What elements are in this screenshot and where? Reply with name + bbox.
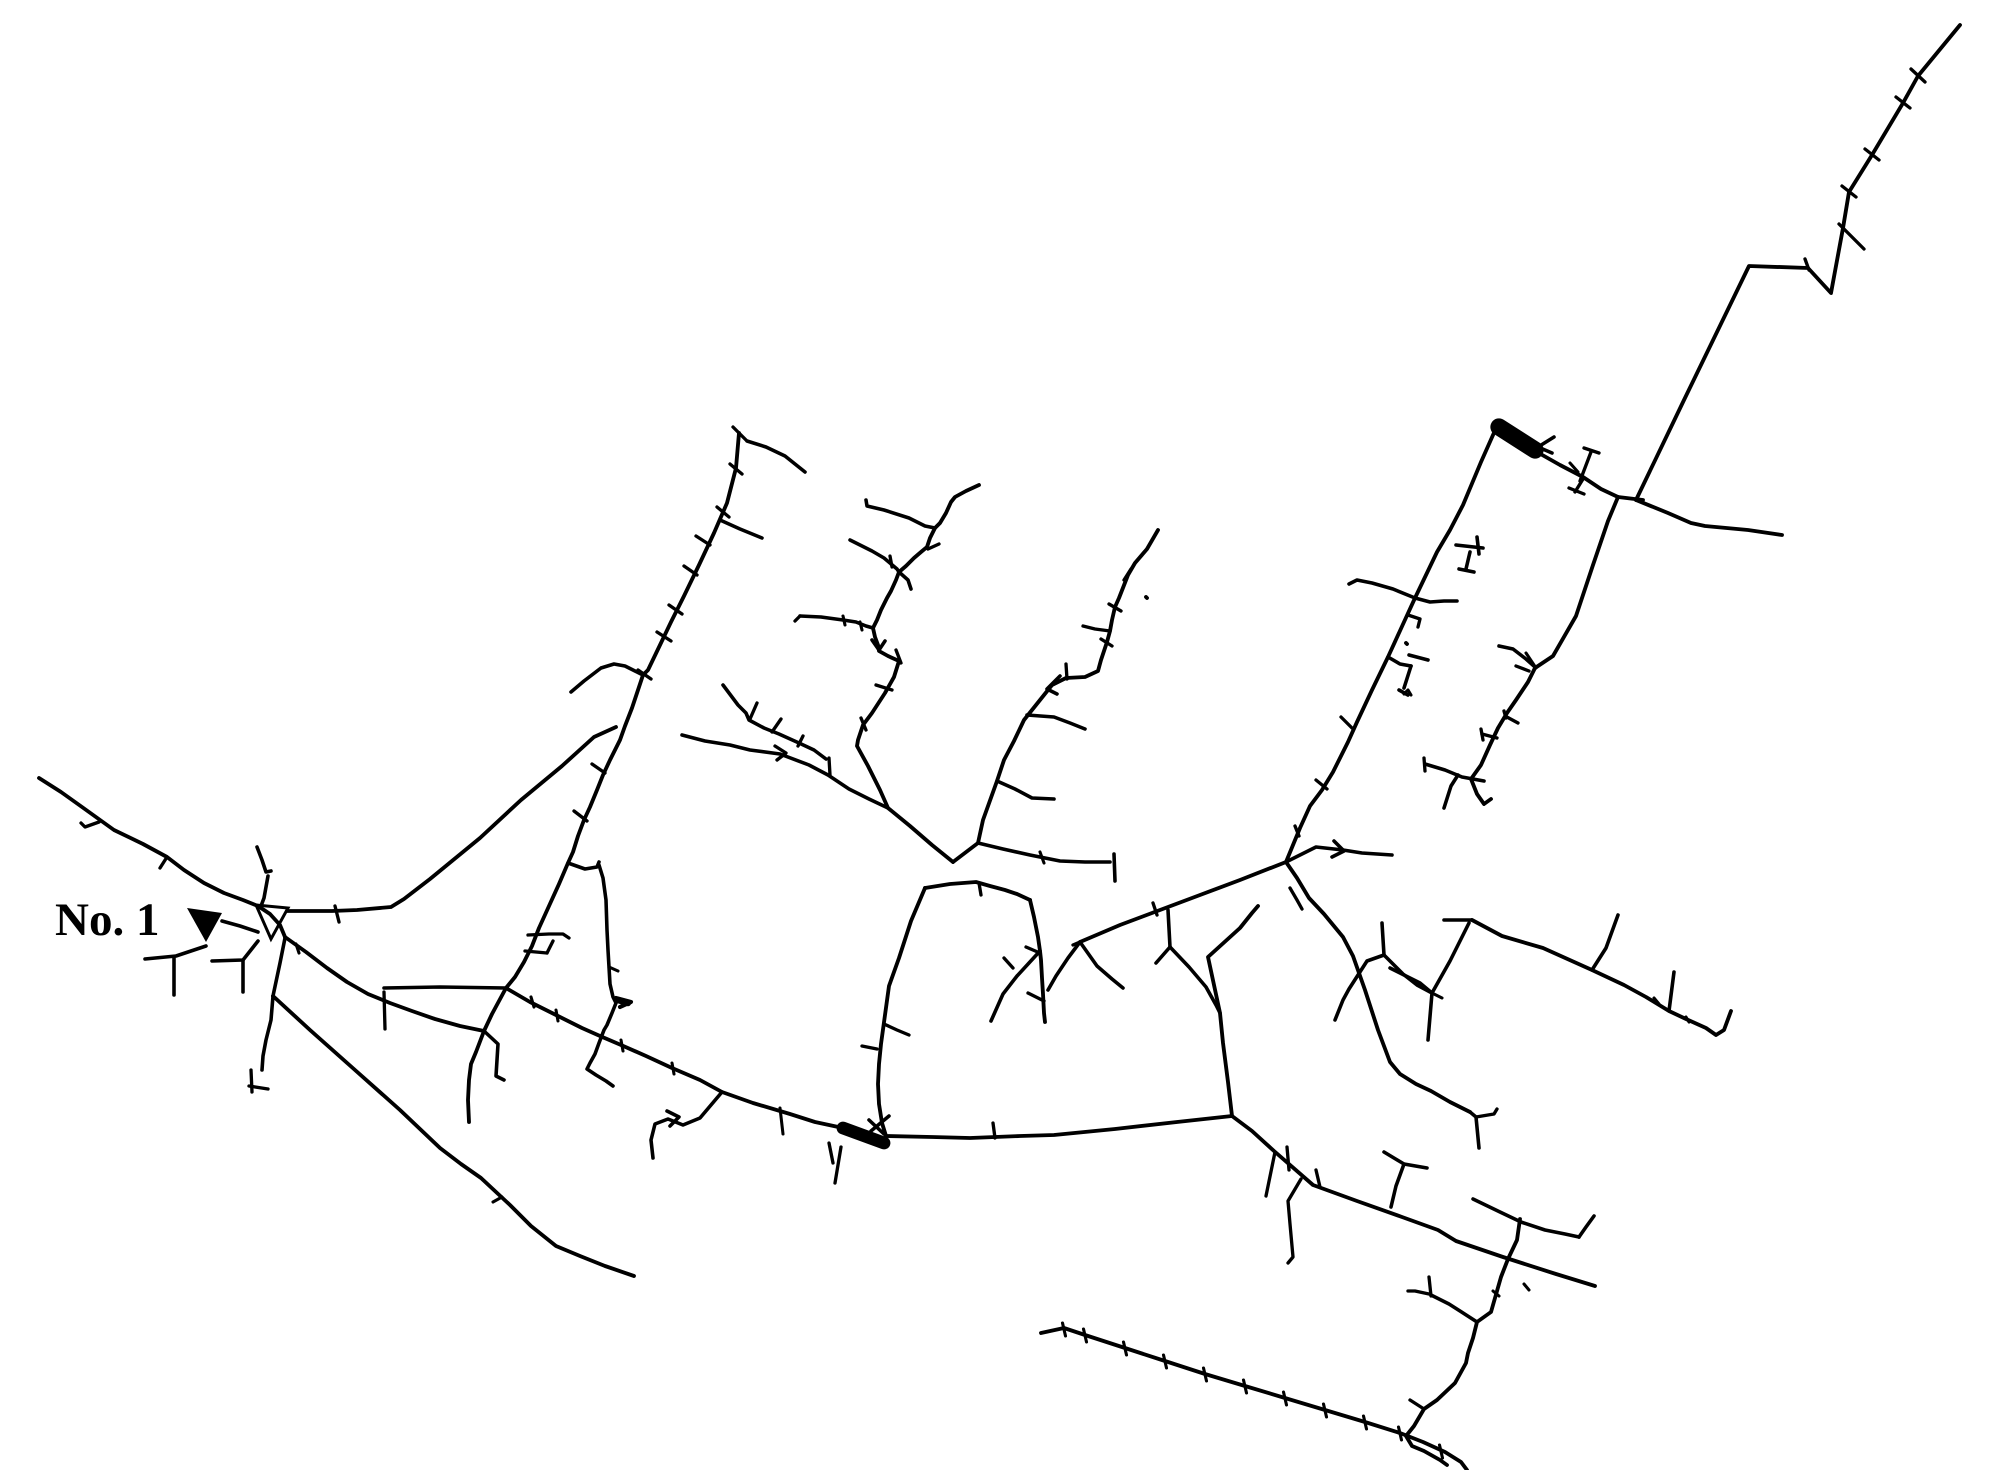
svg-text:No. 1: No. 1 — [55, 894, 159, 946]
